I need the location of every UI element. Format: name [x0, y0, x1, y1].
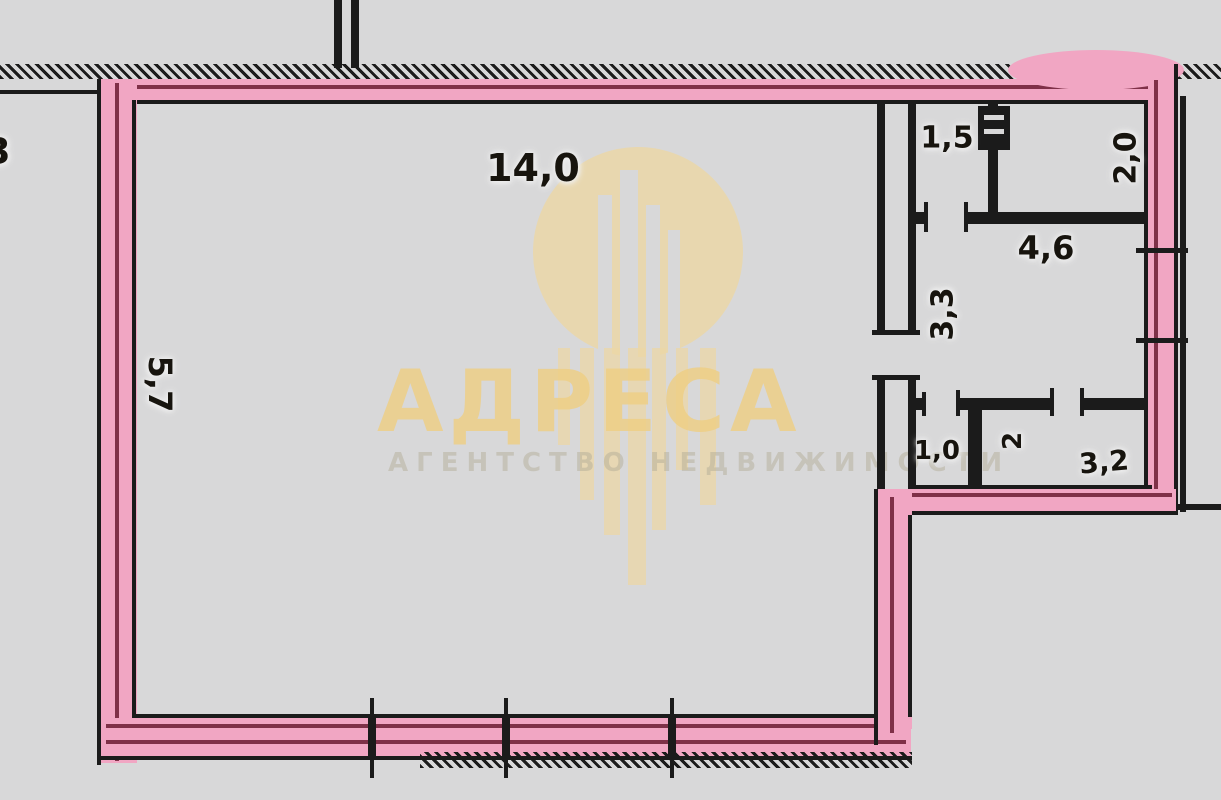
window-tick: [670, 760, 674, 778]
wall-bottom-hatched-edge: [420, 752, 912, 768]
door-tick: [924, 202, 928, 232]
window-tick: [370, 760, 374, 778]
wall-right-highlight: [1148, 74, 1174, 513]
window-mullion: [502, 716, 510, 760]
room-label-2: 2: [998, 432, 1028, 450]
wall-main-right-a: [877, 100, 885, 332]
wall-step-line: [880, 493, 1172, 497]
wall-lower-right-highlight: [878, 489, 912, 729]
window-tick-right: [1136, 338, 1188, 343]
door-tick: [956, 390, 960, 416]
watermark-brand: АДРЕСА: [377, 352, 802, 452]
window-tick-right: [1136, 248, 1188, 253]
floor-plan: АДРЕСА АГЕНТСТВО НЕДВИЖИМОСТИ: [0, 0, 1221, 800]
wall-left-line: [115, 83, 119, 761]
wall-lower-right-inner: [908, 515, 912, 717]
logo-notch-bar: [598, 195, 612, 357]
wall-top-vertical-a: [334, 0, 342, 68]
room-label-main: 14,0: [486, 146, 580, 190]
window-tick: [504, 760, 508, 778]
wall-neighbor-top-left: [0, 90, 112, 94]
edge-partial-label: 3: [0, 132, 11, 173]
wall-top-line: [112, 85, 1174, 89]
room-label-3-3: 3,3: [926, 287, 961, 340]
window-tick: [370, 698, 374, 716]
room-label-3-2: 3,2: [1078, 443, 1130, 480]
wall-lower-right-line: [890, 497, 894, 733]
door-tick: [964, 202, 968, 232]
logo-notch-bar: [668, 230, 680, 357]
wall-step-bottom: [878, 511, 1178, 515]
door-tick: [922, 392, 926, 416]
wall-divider-10-32: [968, 410, 982, 488]
room-label-1-0: 1,0: [914, 436, 960, 466]
wall-neighbor-right-vertical: [1180, 96, 1186, 512]
wall-mid-b: [958, 398, 1054, 410]
wall-right-line: [1154, 80, 1158, 510]
door-jamb: [872, 330, 920, 335]
wall-left-inner: [132, 100, 136, 740]
wall-main-right-b2: [908, 380, 916, 489]
window-tick: [504, 698, 508, 716]
vent-shaft: [978, 106, 1010, 150]
wall-top-vertical-b: [351, 0, 359, 68]
logo-notch-bar: [646, 205, 660, 357]
vent-slit: [984, 129, 1004, 134]
window-tick: [670, 698, 674, 716]
room-label-main-side: 5,7: [141, 356, 179, 413]
door-tick: [1080, 388, 1084, 416]
wall-top-inner: [112, 100, 1176, 104]
wall-mid-c: [1082, 398, 1148, 410]
room-label-4-6: 4,6: [1018, 229, 1075, 267]
wall-main-right-a2: [877, 380, 885, 489]
room-label-1-5: 1,5: [920, 121, 973, 156]
window-mullion: [668, 716, 676, 760]
window-mullion: [368, 716, 376, 760]
logo-notch-bar: [620, 170, 638, 357]
room-label-2-0: 2,0: [1109, 131, 1144, 184]
wall-right-outer: [1174, 64, 1178, 514]
vent-slit: [984, 115, 1004, 120]
door-tick: [1050, 388, 1054, 416]
